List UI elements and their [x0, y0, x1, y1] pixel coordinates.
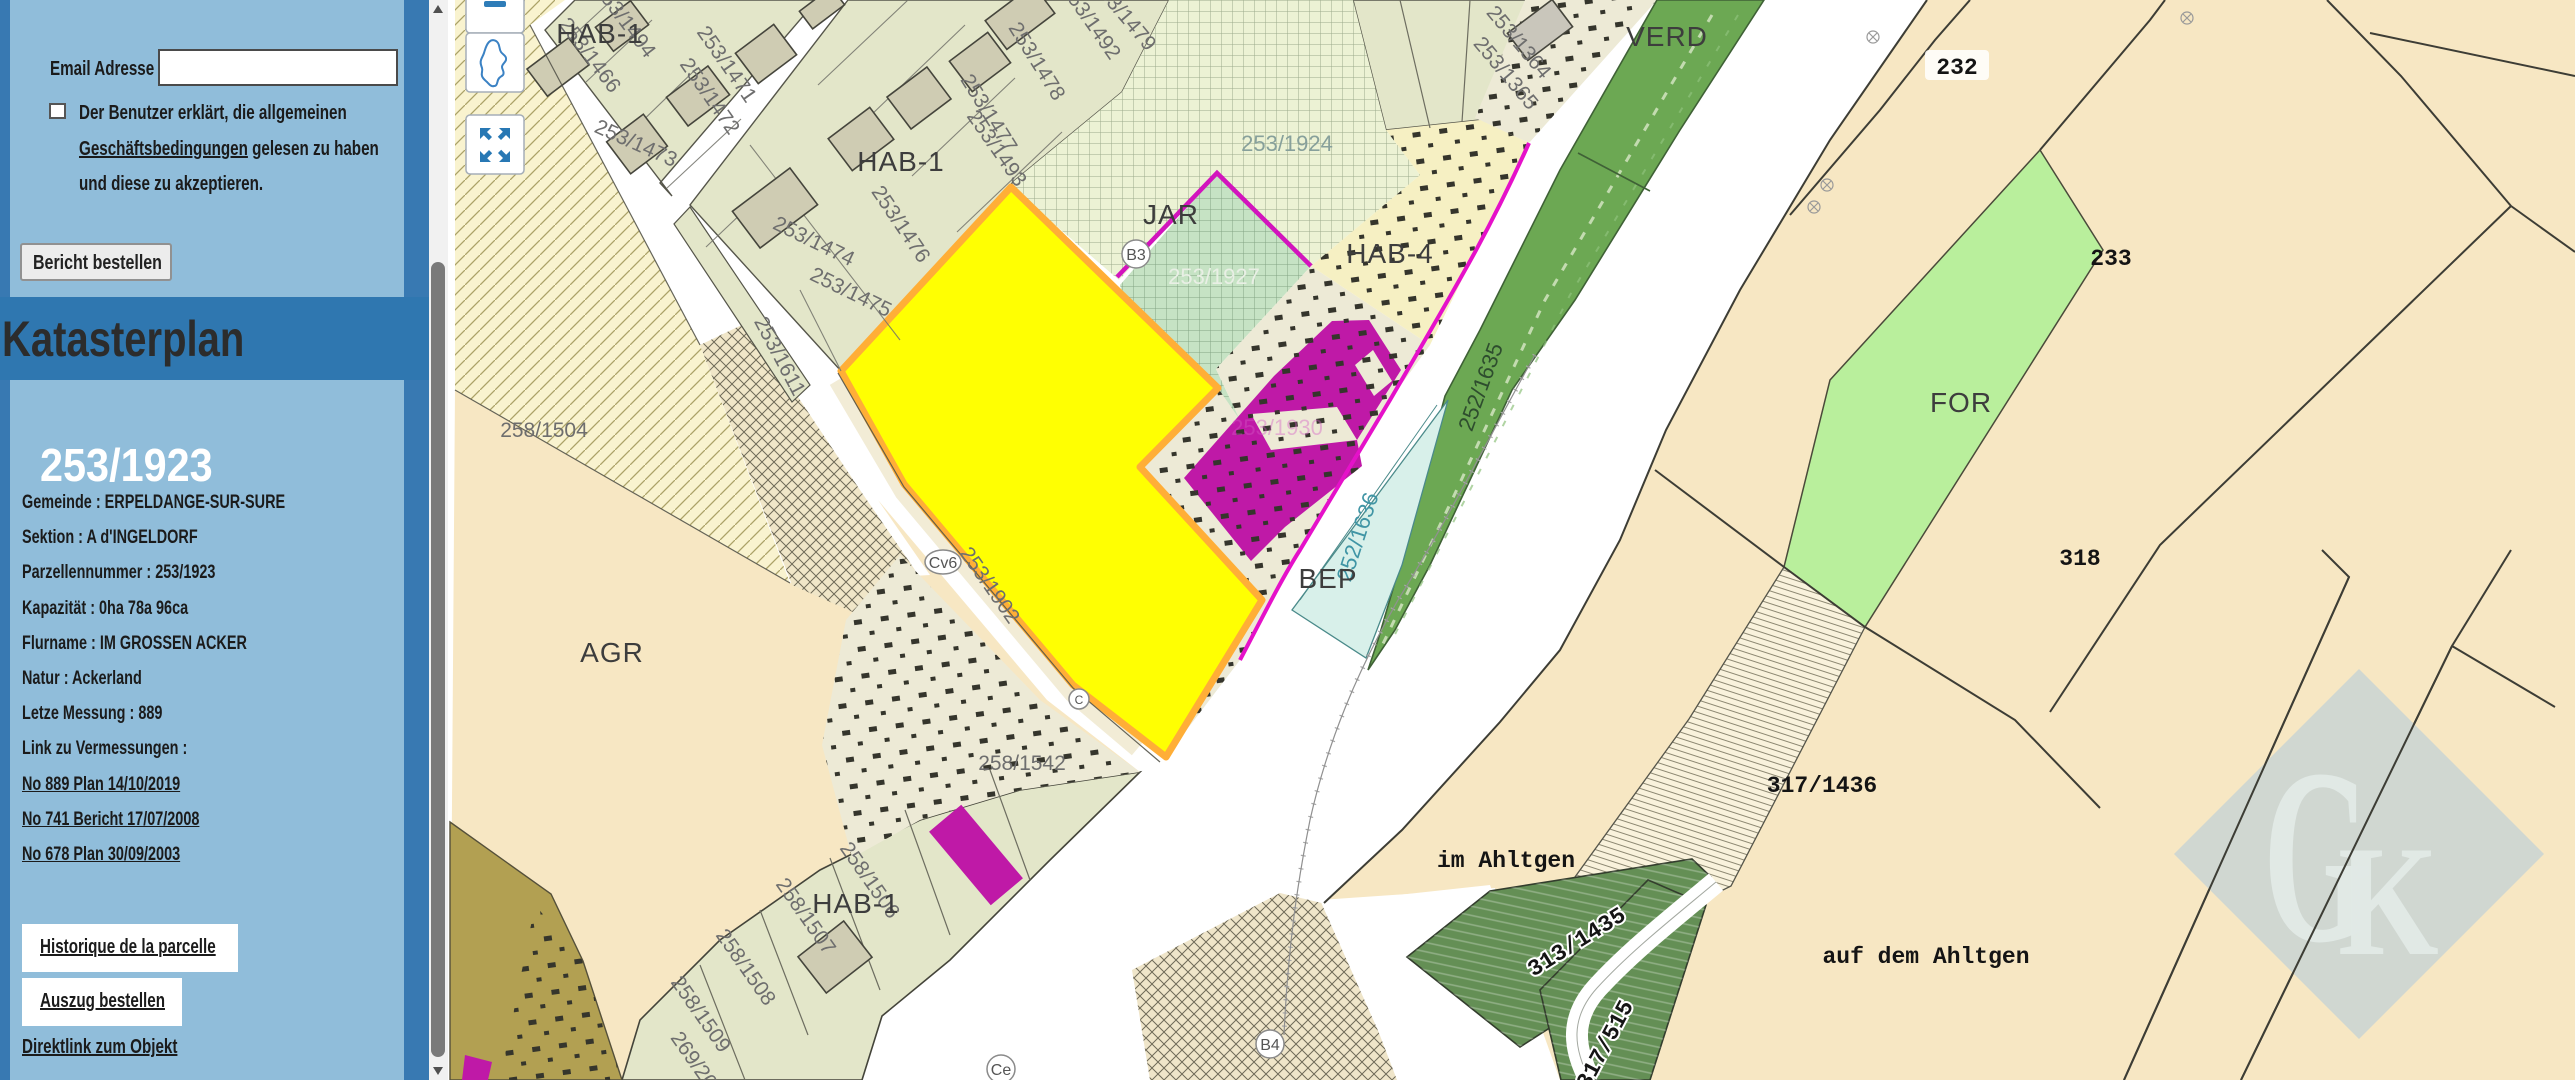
svg-text:AGR: AGR — [580, 637, 644, 668]
svg-text:253/1924: 253/1924 — [1241, 131, 1333, 156]
svg-text:B3: B3 — [1126, 247, 1146, 264]
svg-text:253/1930: 253/1930 — [1231, 415, 1323, 440]
svg-text:VERD: VERD — [1626, 21, 1708, 52]
svg-text:HAB-1: HAB-1 — [812, 888, 899, 919]
svg-text:318: 318 — [2059, 546, 2100, 572]
svg-text:HAB-1: HAB-1 — [556, 18, 643, 49]
svg-text:Ce: Ce — [991, 1062, 1012, 1079]
svg-text:C: C — [1075, 693, 1084, 707]
svg-text:258/1542: 258/1542 — [978, 752, 1066, 775]
svg-text:FOR: FOR — [1930, 387, 1992, 418]
svg-text:Cv6: Cv6 — [929, 555, 958, 572]
svg-text:auf dem Ahltgen: auf dem Ahltgen — [1822, 944, 2029, 970]
svg-text:233: 233 — [2090, 246, 2131, 272]
svg-text:K: K — [2338, 814, 2439, 989]
svg-text:232: 232 — [1936, 55, 1977, 81]
svg-text:B4: B4 — [1260, 1037, 1280, 1054]
svg-text:HAB-1: HAB-1 — [857, 146, 944, 177]
svg-text:317/1436: 317/1436 — [1767, 773, 1877, 799]
svg-text:253/1927: 253/1927 — [1168, 264, 1260, 289]
svg-text:JAR: JAR — [1143, 199, 1199, 230]
svg-text:BEP: BEP — [1298, 563, 1357, 594]
svg-text:258/1504: 258/1504 — [500, 419, 588, 442]
svg-text:HAB-4: HAB-4 — [1346, 238, 1433, 269]
svg-text:im Ahltgen: im Ahltgen — [1437, 848, 1575, 874]
